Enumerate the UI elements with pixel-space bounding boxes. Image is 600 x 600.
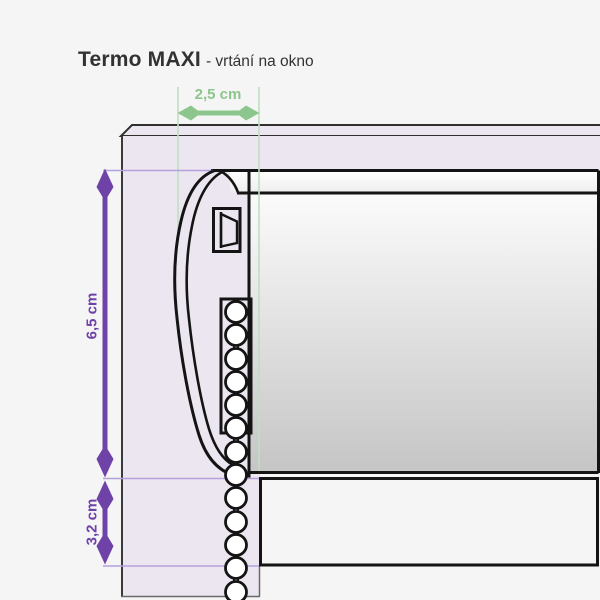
chain-bead: [226, 465, 247, 486]
arrow-up-icon: [97, 169, 114, 202]
chain-bead: [226, 512, 247, 533]
blind-roller-tube: [250, 195, 599, 472]
chain-bead: [226, 558, 247, 579]
window-frame-top-face: [121, 125, 600, 136]
dimension-label-drop-below: 3,2 cm: [84, 499, 101, 546]
chain-bead: [226, 488, 247, 509]
blind-top-strip: [230, 172, 598, 193]
dimension-label-bracket-height: 6,5 cm: [84, 293, 101, 340]
chain-bead: [226, 418, 247, 439]
arrow-down-icon: [97, 445, 114, 478]
page-title: Termo MAXI- vrtání na okno: [78, 48, 314, 72]
chain-bead: [226, 442, 247, 463]
roller-blind: [211, 171, 599, 566]
product-name: Termo MAXI: [78, 48, 201, 71]
diagram-canvas: Termo MAXI- vrtání na okno 2,5 cm 6,5 cm…: [0, 0, 600, 600]
arrow-right-icon: [236, 106, 260, 121]
chain-bead: [226, 372, 247, 393]
dimension-label-drill-width: 2,5 cm: [148, 86, 288, 103]
chain-bead: [226, 302, 247, 323]
arrow-left-icon: [178, 106, 202, 121]
chain-bead: [226, 349, 247, 370]
chain-bead: [226, 395, 247, 416]
chain-bead: [226, 325, 247, 346]
product-subtitle: - vrtání na okno: [206, 53, 314, 70]
chain-bead: [226, 582, 247, 600]
blind-fabric-panel: [261, 479, 598, 566]
chain-bead: [226, 535, 247, 556]
dimension-2-5: [178, 106, 260, 121]
